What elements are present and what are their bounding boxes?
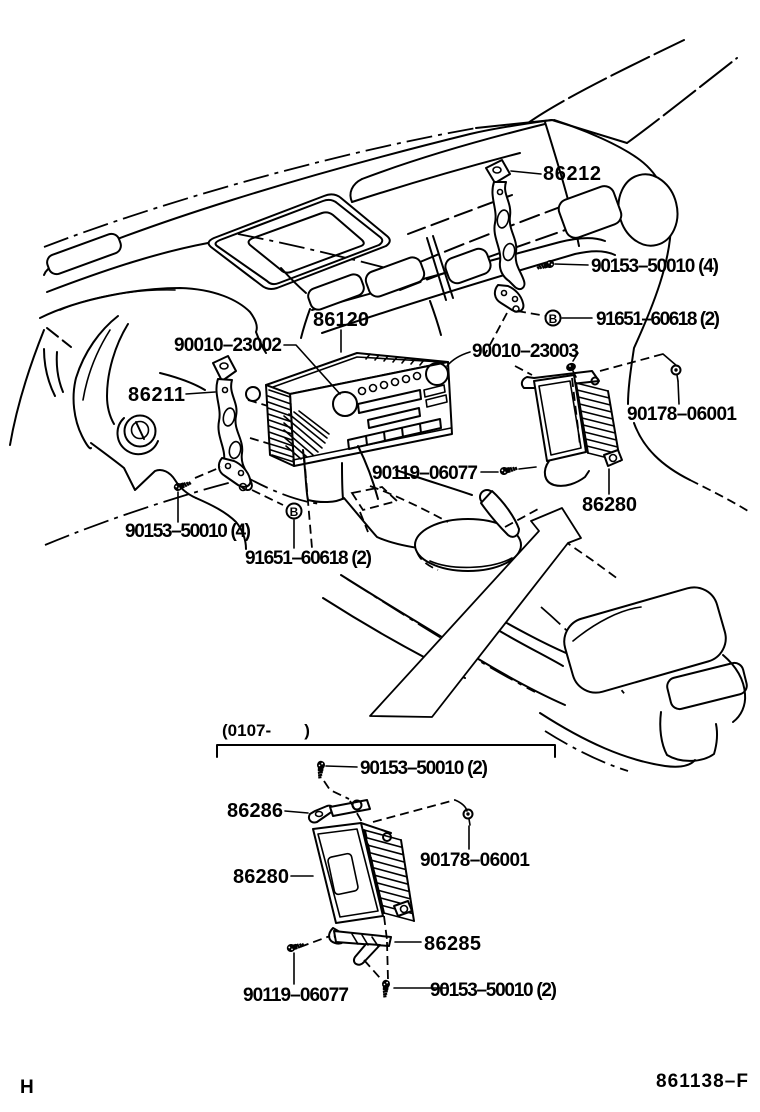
svg-text:90178–06001: 90178–06001 [420,850,530,871]
svg-text:90153–50010 (4): 90153–50010 (4) [591,256,719,277]
svg-text:(0107- ): (0107- ) [222,721,310,740]
svg-text:90153–50010 (2): 90153–50010 (2) [430,980,557,1001]
svg-text:H: H [20,1077,34,1098]
svg-text:90153–50010 (4): 90153–50010 (4) [125,521,251,542]
svg-text:86280: 86280 [582,494,637,516]
svg-text:86212: 86212 [543,163,601,185]
svg-text:91651–60618 (2): 91651–60618 (2) [245,548,372,569]
svg-text:90010–23003: 90010–23003 [472,341,579,362]
svg-text:86211: 86211 [128,384,185,406]
svg-text:91651–60618 (2): 91651–60618 (2) [596,309,720,330]
svg-text:861138–F: 861138–F [656,1071,748,1092]
svg-text:86120: 86120 [313,309,369,331]
svg-text:86280: 86280 [233,866,289,888]
svg-text:90178–06001: 90178–06001 [627,404,737,425]
svg-text:90119–06077: 90119–06077 [243,985,349,1006]
svg-text:90010–23002: 90010–23002 [174,335,282,356]
svg-text:B: B [290,505,299,519]
svg-text:86285: 86285 [424,933,481,955]
svg-text:B: B [549,312,558,326]
svg-text:90153–50010 (2): 90153–50010 (2) [360,758,488,779]
svg-text:90119–06077: 90119–06077 [372,463,478,484]
svg-text:86286: 86286 [227,800,283,822]
